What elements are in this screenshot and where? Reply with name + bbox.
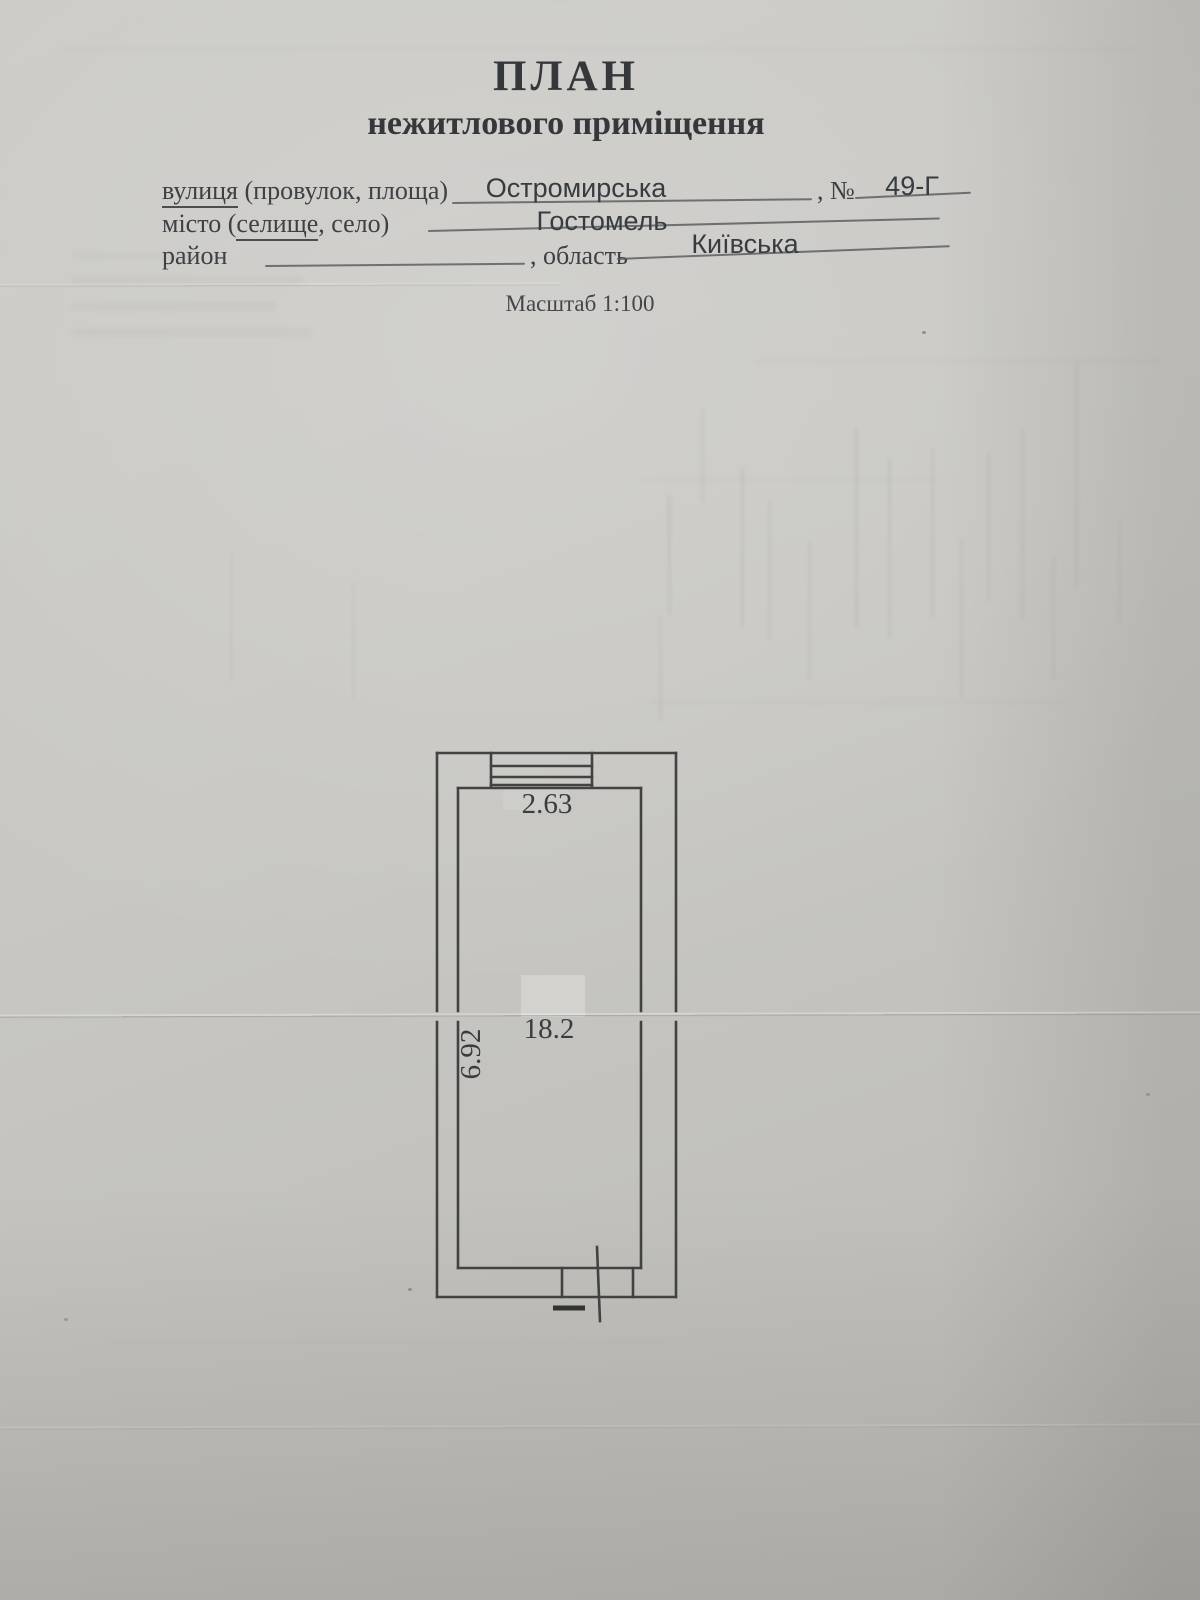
document-photo: ПЛАН нежитлового приміщення вулиця (пров…	[0, 0, 1200, 1600]
street-label-word: вулиця	[162, 176, 238, 208]
street-value: Остромирська	[456, 173, 696, 204]
city-label-suffix: , село)	[318, 209, 389, 238]
dust-speck	[408, 1288, 412, 1291]
street-label: вулиця (провулок, площа)	[162, 176, 448, 206]
paper-crease	[0, 1423, 1200, 1428]
district-underline	[265, 263, 525, 267]
title-line1: ПЛАН	[0, 52, 1132, 101]
whiteout-patch	[521, 975, 585, 1017]
paper-crease	[0, 282, 560, 285]
dust-speck	[64, 1318, 68, 1321]
dust-speck	[922, 331, 926, 334]
region-label: , область	[530, 241, 628, 271]
dimension-depth: 6.92	[455, 1029, 487, 1080]
city-label-prefix: місто (	[162, 209, 236, 238]
region-value: Київська	[625, 229, 865, 260]
scale-label: Масштаб 1:100	[420, 291, 740, 317]
city-label: місто (селище, село)	[162, 209, 389, 239]
dimension-area: 18.2	[524, 1013, 575, 1045]
city-label-word: селище	[236, 209, 318, 241]
dust-speck	[1146, 1093, 1150, 1096]
dimension-width: 2.63	[522, 788, 573, 820]
door-swing-line	[597, 1247, 600, 1321]
document-title: ПЛАН нежитлового приміщення	[0, 52, 1132, 143]
street-label-rest: (провулок, площа)	[238, 176, 448, 205]
title-line2: нежитлового приміщення	[0, 105, 1132, 143]
floor-plan-drawing: 2.63 18.2 6.92	[395, 728, 725, 1368]
number-value: 49-Г	[852, 171, 972, 202]
window-jambs	[491, 753, 592, 786]
number-label: , №	[817, 176, 855, 206]
district-label: район	[162, 241, 227, 271]
window-lines	[491, 766, 592, 785]
